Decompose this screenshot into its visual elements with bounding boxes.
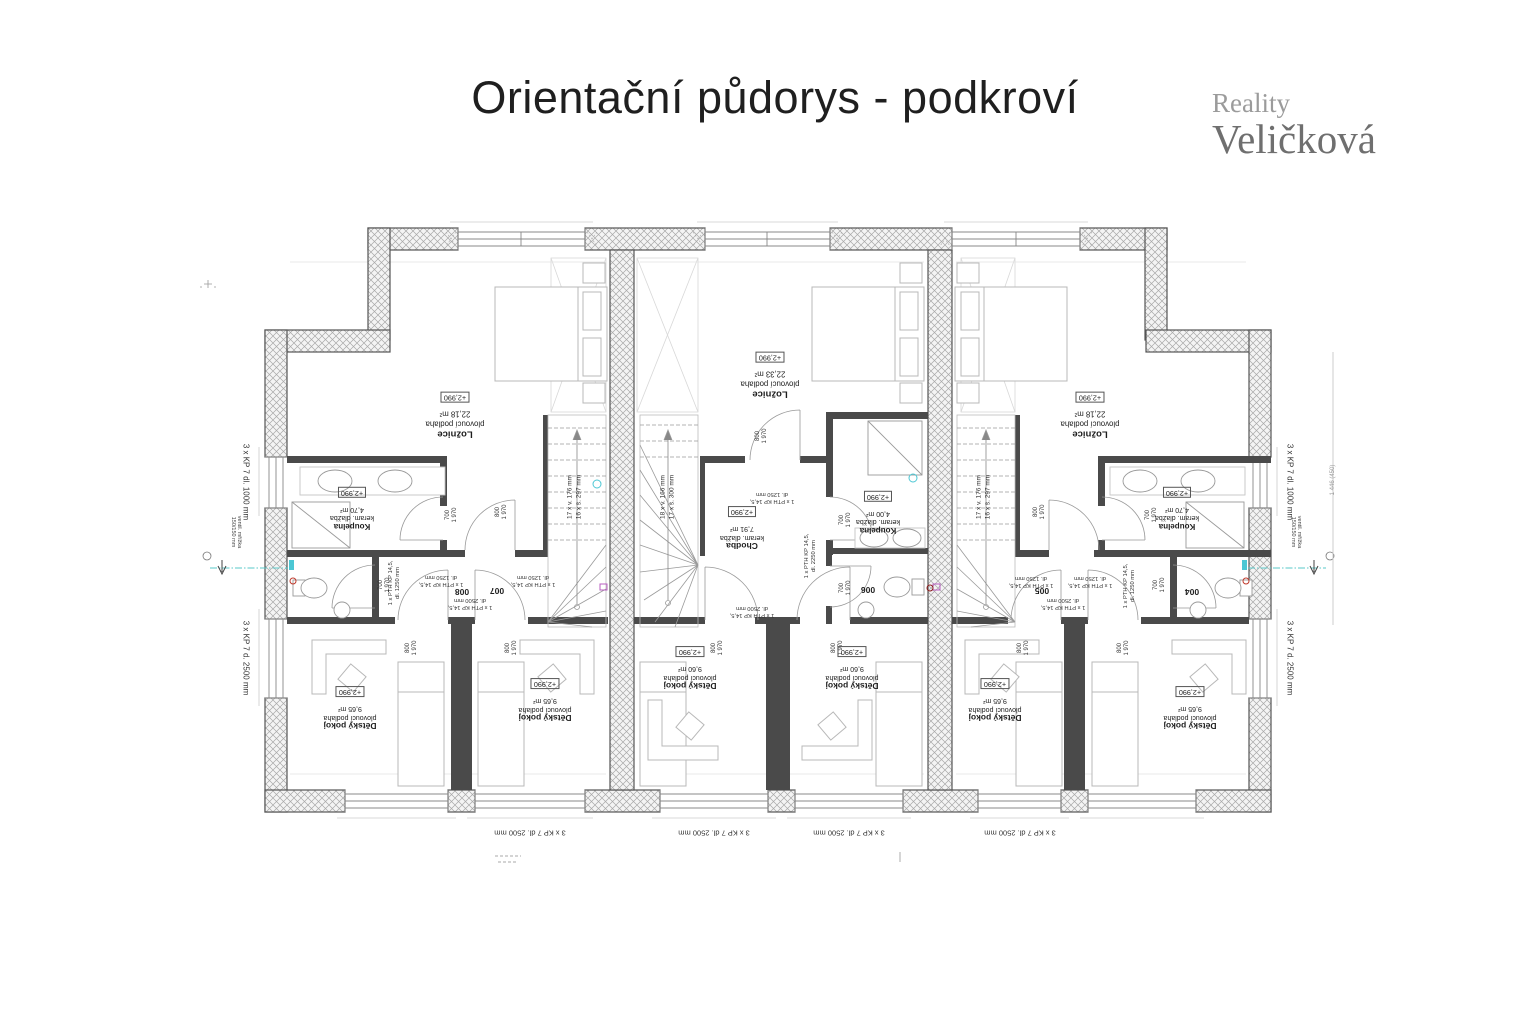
lintel-type: 1 x PTH KP 14,5, <box>804 534 811 579</box>
door-width: 700 <box>445 507 452 522</box>
door-width: 800 <box>495 504 502 519</box>
lintel-note: 1 x PTH KP 14,5, dl. 1250 mm <box>750 490 795 504</box>
lintel-note: 1 x PTH KP 14,5, dl. 2500 mm <box>1041 596 1086 610</box>
edge-label-right-window-1000: 3 x KP 7 dl. 1000 mm <box>1286 444 1295 520</box>
door-height: 1 970 <box>412 640 419 655</box>
edge-label-left-window-2500: 3 x KP 7 d. 2500 mm <box>242 621 251 696</box>
lintel-length: dl. 1250 mm <box>1130 564 1137 609</box>
room-level: +2,990 <box>1163 487 1191 498</box>
room-level: +2,990 <box>338 487 366 498</box>
room-floor: keram. dlažba <box>720 533 764 541</box>
wc-right <box>1190 578 1252 618</box>
door-width: 800 <box>755 428 762 443</box>
lintel-note: 1 x PTH KP 14,5, dl. 1250 mm <box>1009 574 1054 588</box>
lintel-length: dl. 1250 mm <box>750 490 795 497</box>
vent-grille-note-right: ventil. mřížka 150/150 mm <box>1290 516 1302 548</box>
door-width: 800 <box>1033 504 1040 519</box>
lintel-length: dl. 1250 mm <box>511 573 556 580</box>
stair-left <box>548 415 606 627</box>
room-floor: plovoucí podlaha <box>519 705 572 713</box>
room-floor: keram. dlažba <box>856 517 900 525</box>
lintel-length: dl. 2500 mm <box>730 604 775 611</box>
logo-line-1: Reality <box>1212 90 1376 117</box>
room-number-007: 007 <box>490 586 504 596</box>
door-height: 1 970 <box>1160 577 1167 592</box>
door-dim: 800 1 970 <box>495 504 509 519</box>
room-level: +2,990 <box>531 678 559 689</box>
lintel-length: dl. 1250 mm <box>1068 574 1113 581</box>
stair-risers: 17 x v. 176 mm <box>567 475 576 519</box>
room-level: +2,990 <box>864 491 892 502</box>
vent-size: 150/150 mm <box>230 516 236 548</box>
door-dim: 700 1 970 <box>1153 577 1167 592</box>
bottom-window-label: 3 x KP 7 dl. 2500 mm <box>678 829 750 838</box>
room-name: Dětský pokoj <box>826 681 879 691</box>
door-width: 700 <box>378 577 385 592</box>
door-dim: 800 1 970 <box>405 640 419 655</box>
room-level: +2,990 <box>336 686 364 697</box>
room-floor: keram. dlažba <box>1155 513 1199 521</box>
bottom-window-label: 3 x KP 7 dl. 2500 mm <box>984 829 1056 838</box>
lintel-type: 1 x PTH KP 14,5, <box>1123 564 1130 609</box>
lintel-length: dl. 1250 mm <box>1009 574 1054 581</box>
edge-label-right-window-2500: 3 x KP 7 d. 2500 mm <box>1286 621 1295 696</box>
room-label-detsky-left-2: Dětský pokoj plovoucí podlaha 9,65 m² +2… <box>519 677 572 723</box>
fixtures <box>292 421 1252 618</box>
vent-text: ventil. mřížka <box>1296 516 1302 548</box>
room-area: 9,65 m² <box>969 696 1022 704</box>
room-area: 9,65 m² <box>519 696 572 704</box>
lintel-note: 1 x PTH KP 14,5, dl. 1250 mm <box>1123 564 1137 609</box>
lintel-type: 1 x PTH KP 14,5, <box>1009 581 1054 588</box>
stair-treads: 17 x š. 300 mm <box>668 475 677 519</box>
lintel-note: 1 x PTH KP 14,5, dl. 1250 mm <box>419 573 464 587</box>
agency-logo: Reality Veličková <box>1212 90 1376 160</box>
page-title: Orientační půdorys - podkroví <box>420 72 1130 124</box>
door-width: 800 <box>831 640 838 655</box>
room-name: Ložnice <box>1061 428 1120 439</box>
room-floor: plovoucí podlaha <box>426 419 485 428</box>
room-label-loznice-right: Ložnice plovoucí podlaha 22,18 m² +2,990 <box>1061 390 1120 439</box>
room-label-loznice-center: Ložnice plovoucí podlaha 22,33 m² +2,990 <box>741 350 800 399</box>
room-number-006: 006 <box>861 585 875 595</box>
room-label-detsky-left-1: Dětský pokoj plovoucí podlaha 9,65 m² +2… <box>324 685 377 731</box>
room-label-koupelna-center: Koupelna keram. dlažba 4,00 m² +2,990 <box>856 489 900 535</box>
door-height: 1 970 <box>762 428 769 443</box>
door-width: 800 <box>1117 640 1124 655</box>
room-label-detsky-center-1: Dětský pokoj plovoucí podlaha 9,60 m² +2… <box>664 645 717 691</box>
room-floor: plovoucí podlaha <box>324 713 377 721</box>
door-width: 800 <box>405 640 412 655</box>
room-label-detsky-right-1: Dětský pokoj plovoucí podlaha 9,65 m² +2… <box>969 677 1022 723</box>
room-name: Koupelna <box>1155 521 1199 531</box>
lintel-type: 1 x PTH KP 14,5, <box>1041 603 1086 610</box>
room-floor: keram. dlažba <box>330 513 374 521</box>
room-label-koupelna-right: Koupelna keram. dlažba 4,70 m² +2,990 <box>1155 485 1199 531</box>
lintel-note: 1 x PTH KP 14,5, dl. 1250 mm <box>1068 574 1113 588</box>
room-floor: plovoucí podlaha <box>664 673 717 681</box>
door-height: 1 970 <box>452 507 459 522</box>
lintel-type: 1 x PTH KP 14,5, <box>419 580 464 587</box>
door-width: 800 <box>1017 640 1024 655</box>
lintel-type: 1 x PTH KP 14,5, <box>1068 581 1113 588</box>
door-height: 1 970 <box>1124 640 1131 655</box>
vent-text: ventil. mřížka <box>236 516 242 548</box>
door-dim: 800 1 970 <box>1033 504 1047 519</box>
room-floor: plovoucí podlaha <box>1061 419 1120 428</box>
door-height: 1 970 <box>1024 640 1031 655</box>
room-label-detsky-right-2: Dětský pokoj plovoucí podlaha 9,65 m² +2… <box>1164 685 1217 731</box>
door-dim: 700 1 970 <box>1145 507 1159 522</box>
wc-left <box>293 578 350 618</box>
room-name: Chodba <box>720 541 764 551</box>
stair-treads: 16 x š. 297 mm <box>984 475 993 519</box>
room-level: +2,990 <box>981 678 1009 689</box>
room-name: Dětský pokoj <box>324 721 377 731</box>
room-area: 22,18 m² <box>1061 410 1120 419</box>
bottom-window-label: 3 x KP 7 dl. 2500 mm <box>813 829 885 838</box>
door-dim: 700 1 970 <box>839 512 853 527</box>
room-name: Ložnice <box>426 428 485 439</box>
stair-dims-center: 18 x v. 166 mm 17 x š. 300 mm <box>660 475 677 519</box>
door-width: 800 <box>711 640 718 655</box>
stair-risers: 18 x v. 166 mm <box>660 475 669 519</box>
door-dim: 800 1 970 <box>755 428 769 443</box>
stair-treads: 16 x š. 297 mm <box>575 475 584 519</box>
lintel-type: 1 x PTH KP 14,5, <box>511 580 556 587</box>
room-name: Ložnice <box>741 388 800 399</box>
lintel-type: 1 x PTH KP 14,5, <box>448 603 493 610</box>
logo-line-2: Veličková <box>1212 119 1376 160</box>
room-area: 7,91 m² <box>720 524 764 532</box>
room-level: +2,990 <box>1076 392 1104 403</box>
room-level: +2,990 <box>728 506 756 517</box>
edge-label-left-window-1000: 3 x KP 7 dl. 1000 mm <box>242 444 251 520</box>
room-name: Koupelna <box>330 521 374 531</box>
room-area: 4,70 m² <box>330 504 374 512</box>
bed-double-center <box>812 263 924 403</box>
bottom-window-label: 3 x KP 7 dl. 2500 mm <box>494 829 566 838</box>
floor-plan-page: Orientační půdorys - podkroví Reality Ve… <box>0 0 1536 1024</box>
door-dim: 800 1 970 <box>505 640 519 655</box>
room-name: Koupelna <box>856 525 900 535</box>
stair-dims-right: 17 x v. 176 mm 16 x š. 297 mm <box>976 475 993 519</box>
door-width: 700 <box>1153 577 1160 592</box>
room-level: +2,990 <box>441 392 469 403</box>
door-width: 800 <box>505 640 512 655</box>
door-height: 1 970 <box>1152 507 1159 522</box>
door-width: 700 <box>839 580 846 595</box>
lintel-note: 1 x PTH KP 14,5, dl. 1250 mm <box>511 573 556 587</box>
lintel-length: dl. 2500 mm <box>1041 596 1086 603</box>
door-dim: 800 1 970 <box>1117 640 1131 655</box>
lintel-type: 1 x PTH KP 14,5, <box>730 611 775 618</box>
lintel-length: dl. 2250 mm <box>811 534 818 579</box>
right-dimension-text: 1 446 (450) <box>1330 465 1336 496</box>
lintel-length: dl. 1250 mm <box>419 573 464 580</box>
door-dim: 700 1 970 <box>839 580 853 595</box>
stair-dims-left: 17 x v. 176 mm 16 x š. 297 mm <box>567 475 584 519</box>
door-height: 1 970 <box>838 640 845 655</box>
lintel-note: 1 x PTH KP 14,5, dl. 2500 mm <box>448 596 493 610</box>
door-width: 700 <box>1145 507 1152 522</box>
lintel-type: 1 x PTH KP 14,5, <box>750 497 795 504</box>
room-label-loznice-left: Ložnice plovoucí podlaha 22,18 m² +2,990 <box>426 390 485 439</box>
room-area: 9,65 m² <box>1164 704 1217 712</box>
door-height: 1 970 <box>385 577 392 592</box>
room-name: Dětský pokoj <box>664 681 717 691</box>
wc-center <box>858 577 924 618</box>
lintel-length: dl. 2500 mm <box>448 596 493 603</box>
stair-center <box>640 415 698 627</box>
room-area: 4,70 m² <box>1155 504 1199 512</box>
door-height: 1 970 <box>512 640 519 655</box>
room-level: +2,990 <box>676 646 704 657</box>
room-area: 22,33 m² <box>741 370 800 379</box>
door-width: 700 <box>839 512 846 527</box>
room-number-004: 004 <box>1185 587 1199 597</box>
room-label-koupelna-left: Koupelna keram. dlažba 4,70 m² +2,990 <box>330 485 374 531</box>
stair-right <box>957 415 1015 627</box>
room-area: 9,60 m² <box>664 664 717 672</box>
room-floor: plovoucí podlaha <box>826 673 879 681</box>
room-floor: plovoucí podlaha <box>969 705 1022 713</box>
room-name: Dětský pokoj <box>969 713 1022 723</box>
door-dim: 800 1 970 <box>1017 640 1031 655</box>
door-dim: 800 1 970 <box>831 640 845 655</box>
stair-risers: 17 x v. 176 mm <box>976 475 985 519</box>
room-area: 22,18 m² <box>426 410 485 419</box>
room-name: Dětský pokoj <box>1164 721 1217 731</box>
room-floor: plovoucí podlaha <box>741 379 800 388</box>
vent-grille-note-left: ventil. mřížka 150/150 mm <box>230 516 242 548</box>
door-height: 1 970 <box>1040 504 1047 519</box>
room-floor: plovoucí podlaha <box>1164 713 1217 721</box>
room-name: Dětský pokoj <box>519 713 572 723</box>
room-label-chodba: Chodba keram. dlažba 7,91 m² +2,990 <box>720 505 764 551</box>
vent-size: 150/150 mm <box>1290 516 1296 548</box>
lintel-note: 1 x PTH KP 14,5, dl. 2500 mm <box>730 604 775 618</box>
room-area: 9,60 m² <box>826 664 879 672</box>
room-level: +2,990 <box>756 352 784 363</box>
lintel-note: 1 x PTH KP 14,5, dl. 2250 mm <box>804 534 818 579</box>
door-height: 1 970 <box>502 504 509 519</box>
door-height: 1 970 <box>846 512 853 527</box>
door-height: 1 970 <box>718 640 725 655</box>
room-level: +2,990 <box>1176 686 1204 697</box>
room-area: 4,00 m² <box>856 508 900 516</box>
lintel-length: dl. 1250 mm <box>395 561 402 606</box>
door-dim: 700 1 970 <box>378 577 392 592</box>
door-dim: 700 1 970 <box>445 507 459 522</box>
door-dim: 800 1 970 <box>711 640 725 655</box>
door-height: 1 970 <box>846 580 853 595</box>
room-area: 9,65 m² <box>324 704 377 712</box>
